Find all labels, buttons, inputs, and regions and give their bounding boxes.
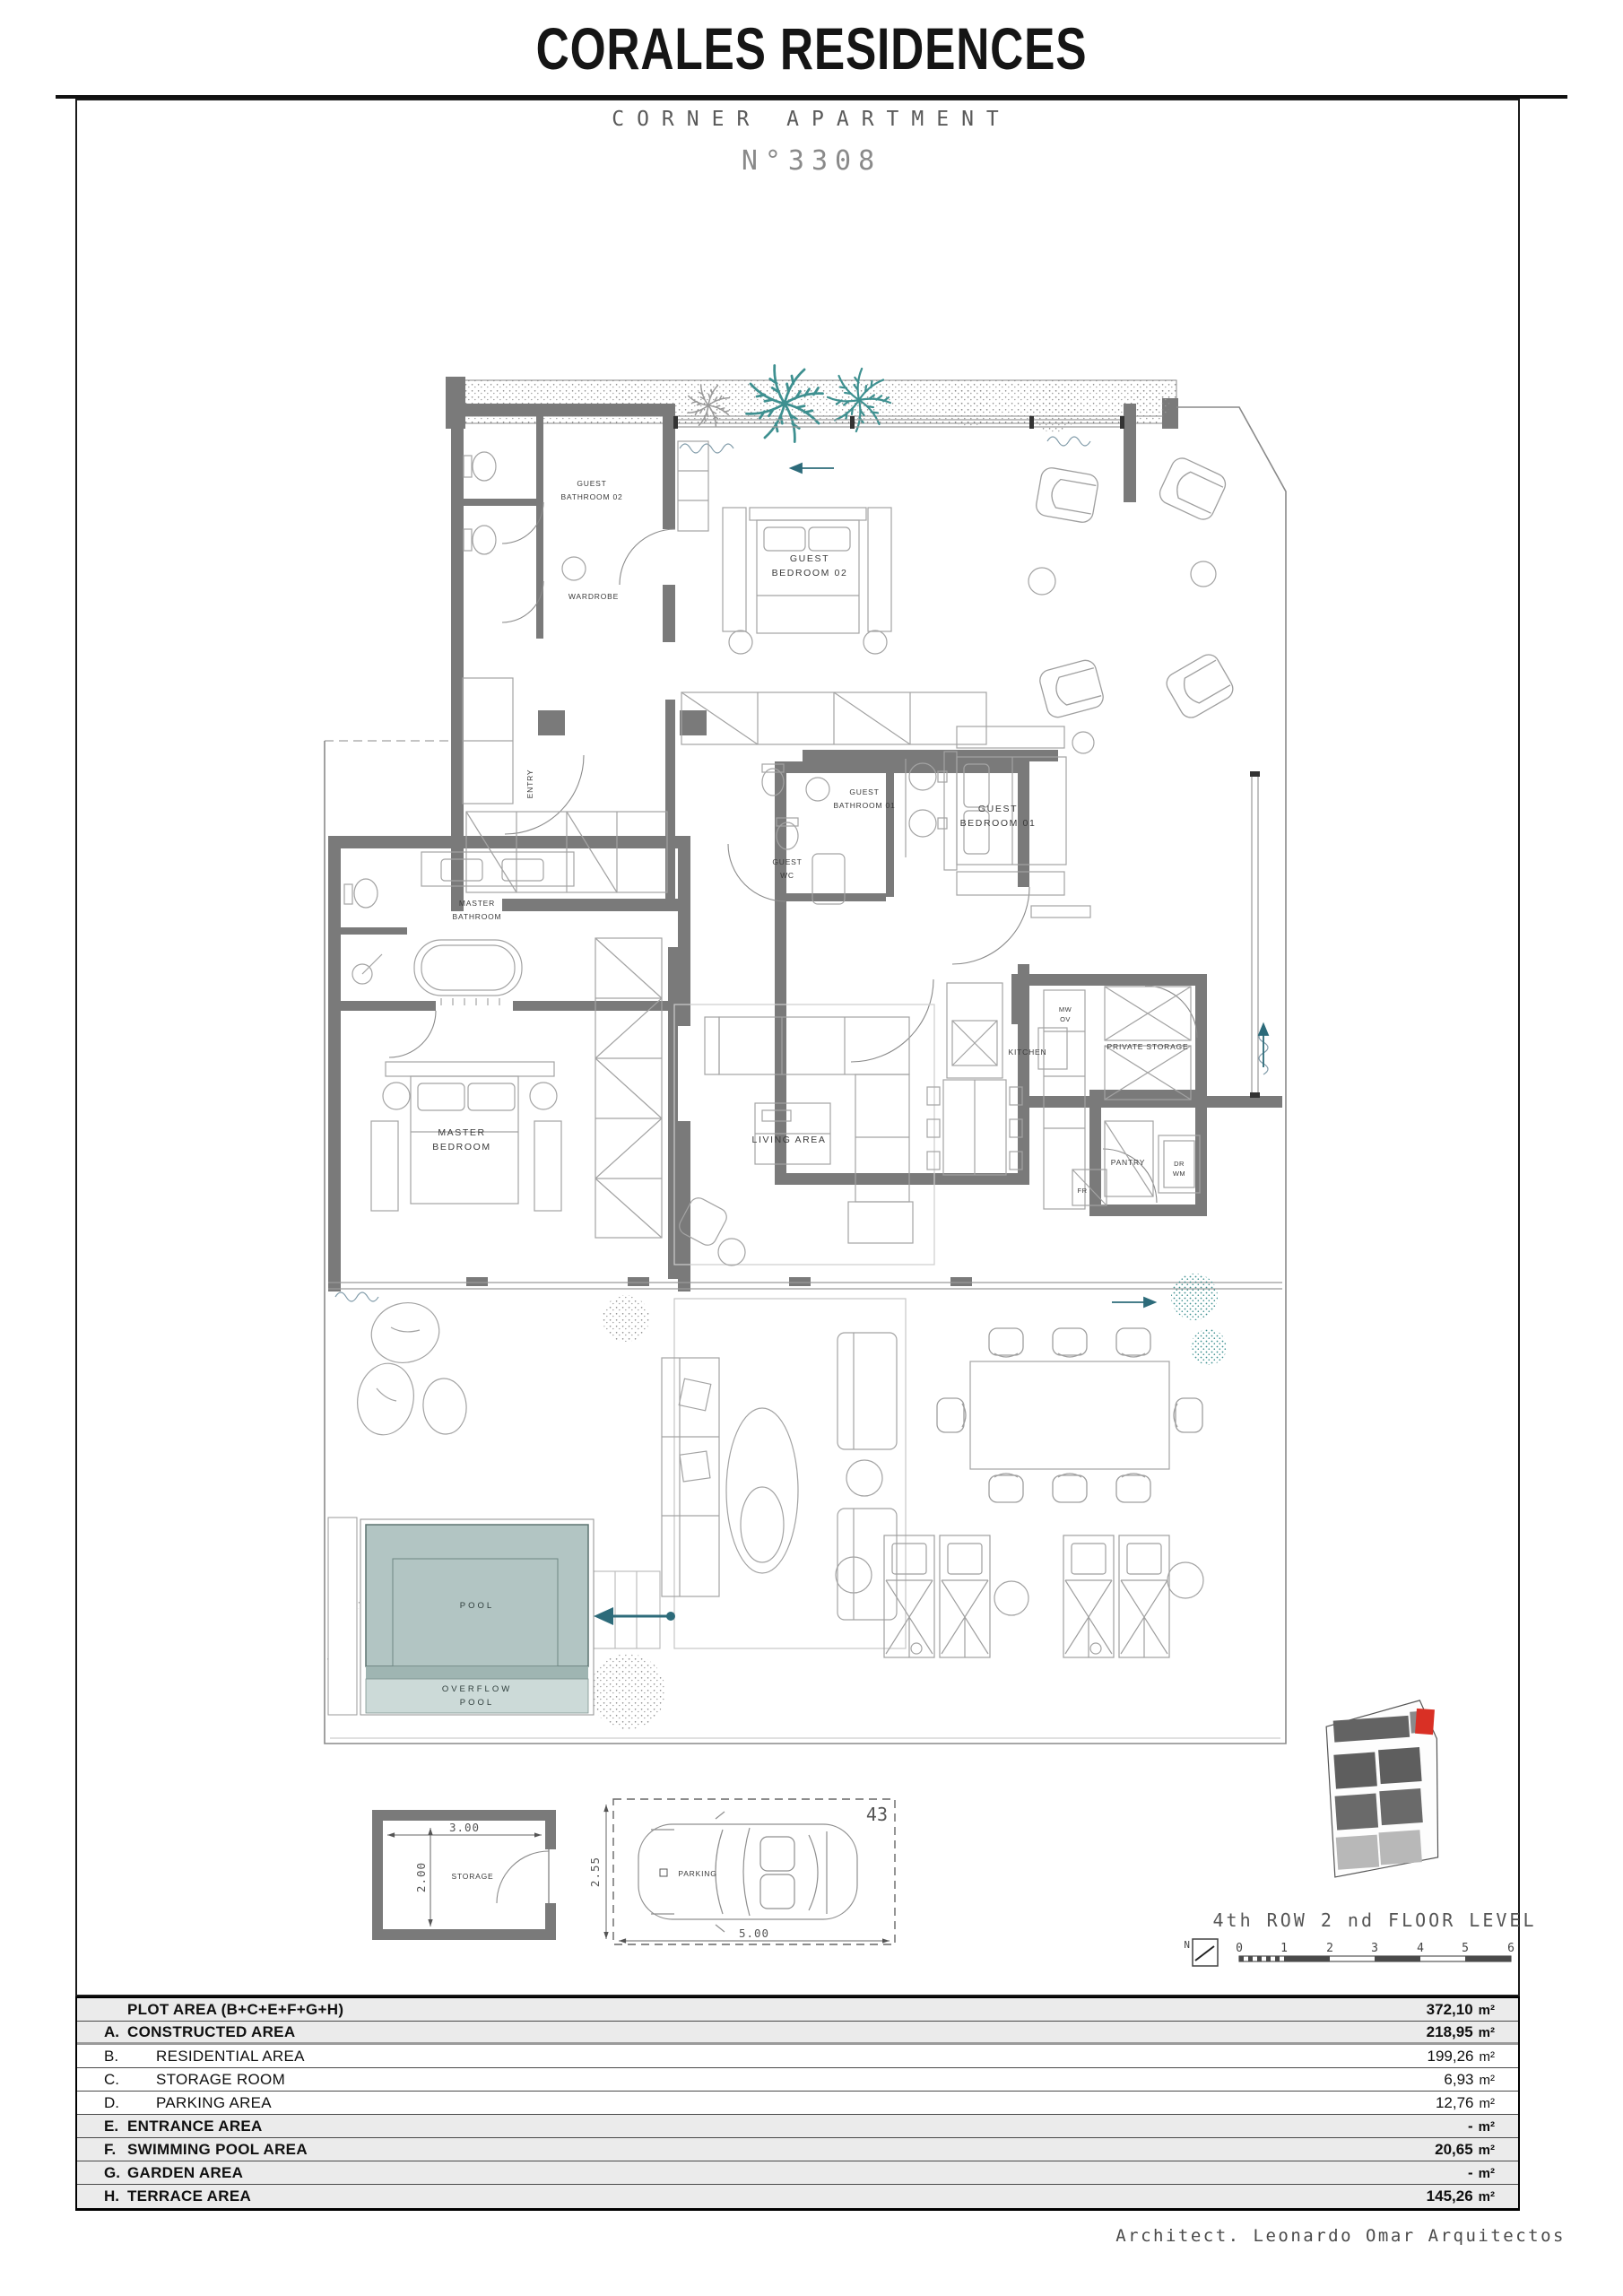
svg-text:2: 2 bbox=[1326, 1942, 1333, 1955]
room-label: POOL bbox=[460, 1698, 494, 1708]
room-label: WARDROBE bbox=[568, 592, 619, 601]
table-row: B. RESIDENTIAL AREA 199,26m² bbox=[77, 2045, 1518, 2068]
room-label: BATHROOM bbox=[453, 912, 502, 921]
north-arrow-icon: N bbox=[1184, 1939, 1218, 1966]
room-label: GUEST bbox=[577, 479, 606, 488]
room-label: MASTER bbox=[459, 899, 495, 908]
room-label: DR bbox=[1174, 1160, 1185, 1168]
architect-credit: Architect. Leonardo Omar Arquitectos bbox=[1115, 2226, 1566, 2246]
table-row: D. PARKING AREA 12,76m² bbox=[77, 2092, 1518, 2115]
site-key-plan bbox=[1324, 1700, 1446, 1877]
dim-label: 2.55 bbox=[588, 1857, 602, 1887]
svg-text:4: 4 bbox=[1417, 1942, 1424, 1955]
bush-icon bbox=[947, 384, 990, 427]
bush-icon bbox=[1131, 382, 1170, 422]
room-label: MW bbox=[1059, 1005, 1072, 1013]
bush-icon bbox=[603, 1295, 649, 1342]
room-label: OVERFLOW bbox=[442, 1684, 512, 1694]
room-label: BATHROOM 01 bbox=[833, 801, 895, 810]
parking-detail: 43 PARKING 2.55 5.00 bbox=[588, 1799, 895, 1944]
table-row: C. STORAGE ROOM 6,93m² bbox=[77, 2068, 1518, 2092]
parking-number: 43 bbox=[866, 1804, 888, 1825]
room-label: LIVING AREA bbox=[752, 1135, 827, 1145]
table-row: A. CONSTRUCTED AREA 218,95m² bbox=[77, 2022, 1518, 2045]
svg-text:5: 5 bbox=[1462, 1942, 1469, 1955]
storage-detail: 3.00 2.00 STORAGE bbox=[378, 1815, 558, 1935]
svg-text:6: 6 bbox=[1507, 1942, 1515, 1955]
room-label: ENTRY bbox=[525, 770, 534, 799]
dim-label: 3.00 bbox=[449, 1821, 480, 1834]
room-label: BEDROOM 01 bbox=[960, 818, 1037, 829]
planter-strip bbox=[446, 361, 1178, 441]
svg-text:0: 0 bbox=[1236, 1942, 1243, 1955]
room-label: PRIVATE STORAGE bbox=[1107, 1042, 1189, 1051]
dim-label: 2.00 bbox=[414, 1862, 428, 1892]
curtain-squiggles bbox=[335, 437, 1268, 1301]
parking-icon bbox=[660, 1869, 667, 1876]
room-label: GUEST bbox=[978, 804, 1018, 814]
room-label: POOL bbox=[460, 1601, 494, 1611]
area-table: PLOT AREA (B+C+E+F+G+H) 372,10m² A. CONS… bbox=[75, 1996, 1520, 2211]
teal-bush-icon bbox=[1191, 1329, 1227, 1365]
storage-label: STORAGE bbox=[451, 1872, 493, 1881]
scale-bar: 0 1 2 3 4 5 6 bbox=[1236, 1942, 1515, 1961]
room-label: GUEST bbox=[849, 787, 879, 796]
room-label: GUEST bbox=[790, 553, 829, 564]
pool-arrow-icon bbox=[594, 1607, 675, 1625]
table-row: PLOT AREA (B+C+E+F+G+H) 372,10m² bbox=[77, 1998, 1518, 2022]
parking-label: PARKING bbox=[678, 1869, 716, 1878]
table-row: E. ENTRANCE AREA -m² bbox=[77, 2115, 1518, 2138]
svg-text:3: 3 bbox=[1371, 1942, 1378, 1955]
svg-text:1: 1 bbox=[1280, 1942, 1288, 1955]
floor-plan-drawing: GUEST BATHROOM 02 WARDROBE GUEST BEDROOM… bbox=[0, 0, 1623, 2296]
room-label: WM bbox=[1173, 1170, 1185, 1178]
dim-label: 5.00 bbox=[739, 1926, 769, 1940]
furniture bbox=[344, 441, 1237, 1657]
room-label: BATHROOM 02 bbox=[560, 492, 622, 501]
table-row: H. TERRACE AREA 145,26m² bbox=[77, 2185, 1518, 2208]
room-label: GUEST bbox=[772, 857, 802, 866]
room-label: MASTER bbox=[438, 1127, 485, 1138]
room-label: WC bbox=[780, 871, 794, 880]
room-label: BEDROOM 02 bbox=[772, 568, 848, 578]
room-label: PANTRY bbox=[1111, 1158, 1146, 1167]
teal-bush-icon bbox=[1171, 1274, 1218, 1320]
table-row: G. GARDEN AREA -m² bbox=[77, 2161, 1518, 2185]
svg-text:N: N bbox=[1184, 1939, 1190, 1951]
room-label: OV bbox=[1060, 1015, 1071, 1023]
floor-level-label: 4th ROW 2 nd FLOOR LEVEL bbox=[1213, 1909, 1537, 1931]
highlighted-unit bbox=[1415, 1709, 1435, 1735]
car-icon bbox=[638, 1812, 857, 1932]
legend: 4th ROW 2 nd FLOOR LEVEL N 0 1 2 3 4 5 6 bbox=[1184, 1909, 1536, 1966]
pool bbox=[366, 1525, 588, 1666]
room-label: BEDROOM bbox=[432, 1142, 490, 1152]
bush-icon bbox=[590, 1654, 665, 1729]
floorplan-sheet: CORALES RESIDENCES CORNER APARTMENT N°33… bbox=[0, 0, 1623, 2296]
room-label: KITCHEN bbox=[1009, 1048, 1047, 1057]
room-label: FR bbox=[1078, 1187, 1088, 1195]
table-row: F. SWIMMING POOL AREA 20,65m² bbox=[77, 2138, 1518, 2161]
bush-icon bbox=[1029, 384, 1078, 432]
